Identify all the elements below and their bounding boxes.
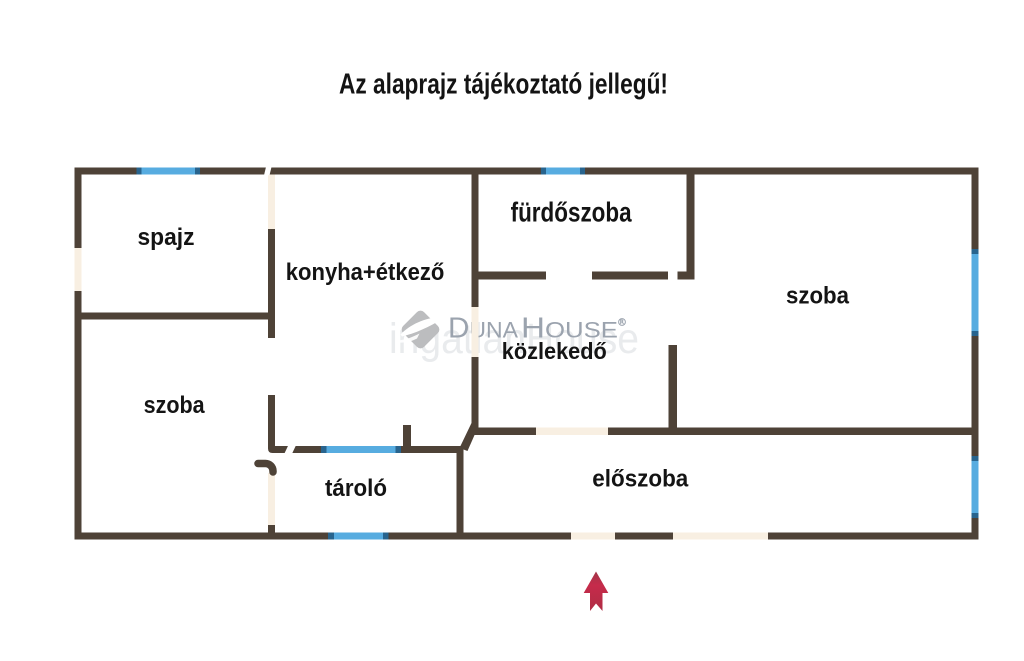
svg-text:tároló: tároló <box>325 475 387 502</box>
svg-text:spajz: spajz <box>138 224 195 251</box>
svg-text:szoba: szoba <box>144 392 206 419</box>
svg-text:szoba: szoba <box>786 282 849 309</box>
svg-text:fürdőszoba: fürdőszoba <box>511 197 632 228</box>
svg-text:közlekedő: közlekedő <box>502 338 607 364</box>
svg-text:előszoba: előszoba <box>592 466 689 493</box>
svg-text:Az alaprajz tájékoztató jelleg: Az alaprajz tájékoztató jellegű! <box>339 69 668 101</box>
svg-text:konyha+étkező: konyha+étkező <box>286 259 445 286</box>
